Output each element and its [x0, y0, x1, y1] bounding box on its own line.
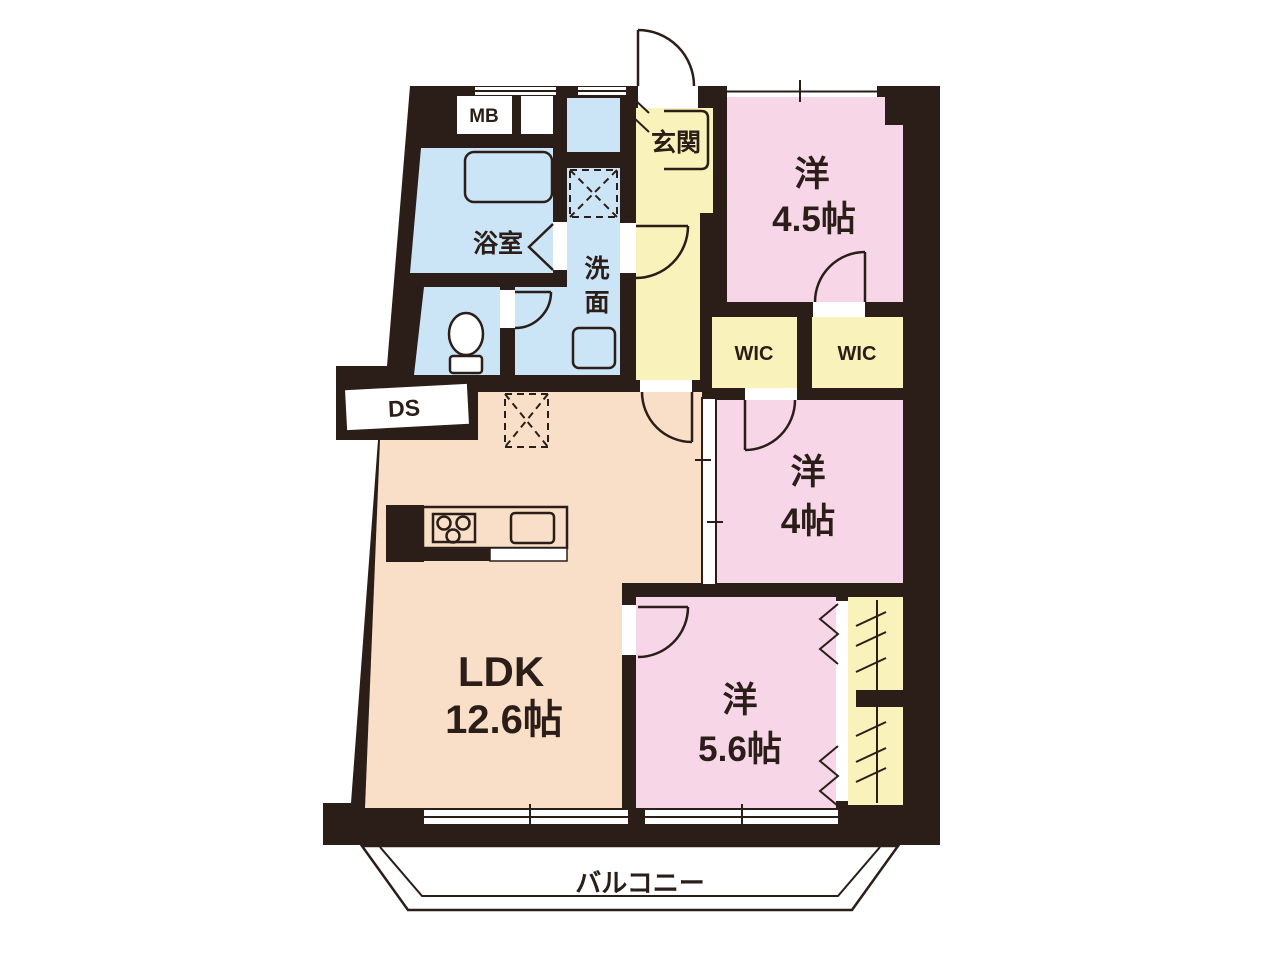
washroom-label-char1: 洗 — [584, 255, 609, 283]
balcony-label: バルコニー — [575, 868, 704, 898]
wic-right-label: WIC — [838, 343, 877, 365]
opening-washroom — [620, 223, 636, 273]
western-4-name: 洋 — [790, 453, 825, 492]
wall-washroom-band — [565, 152, 622, 168]
floor-plan-svg: DS MB 玄関 浴室 洗 面 洋 4.5帖 WIC WIC 洋 4帖 LDK … — [0, 0, 1280, 955]
floor-plan-page: DS MB 玄関 浴室 洗 面 洋 4.5帖 WIC WIC 洋 4帖 LDK … — [0, 0, 1280, 955]
duct-space-label: DS — [387, 394, 420, 422]
closet-56-front — [836, 601, 848, 801]
opening-wic-left — [745, 388, 797, 400]
opening-entrance — [638, 86, 698, 108]
entrance-door — [638, 30, 694, 86]
opening-bath — [553, 222, 567, 270]
opening-hall-ldk — [640, 380, 692, 392]
washroom-label-char2: 面 — [584, 289, 609, 317]
western-56-size: 5.6帖 — [698, 730, 782, 769]
wall-closet-stub — [856, 690, 925, 707]
meter-box-label: MB — [469, 106, 499, 127]
opening-western-56 — [622, 605, 636, 655]
opening-wic-right — [813, 302, 865, 317]
room-washroom-upper — [567, 98, 620, 152]
toilet — [449, 313, 483, 373]
bathroom-label: 浴室 — [473, 229, 523, 258]
western-45-name: 洋 — [794, 155, 829, 194]
genkan-label: 玄関 — [651, 128, 701, 157]
wall-kitchen-stub — [386, 505, 424, 562]
duct-space-box: DS — [344, 383, 470, 431]
ldk-name: LDK — [458, 648, 544, 695]
ldk-size: 12.6帖 — [445, 698, 563, 742]
western-56-name: 洋 — [722, 681, 757, 720]
wic-left-label: WIC — [735, 343, 774, 365]
opening-toilet — [500, 290, 515, 328]
western-4-size: 4帖 — [781, 502, 835, 541]
western-45-size: 4.5帖 — [772, 200, 856, 239]
